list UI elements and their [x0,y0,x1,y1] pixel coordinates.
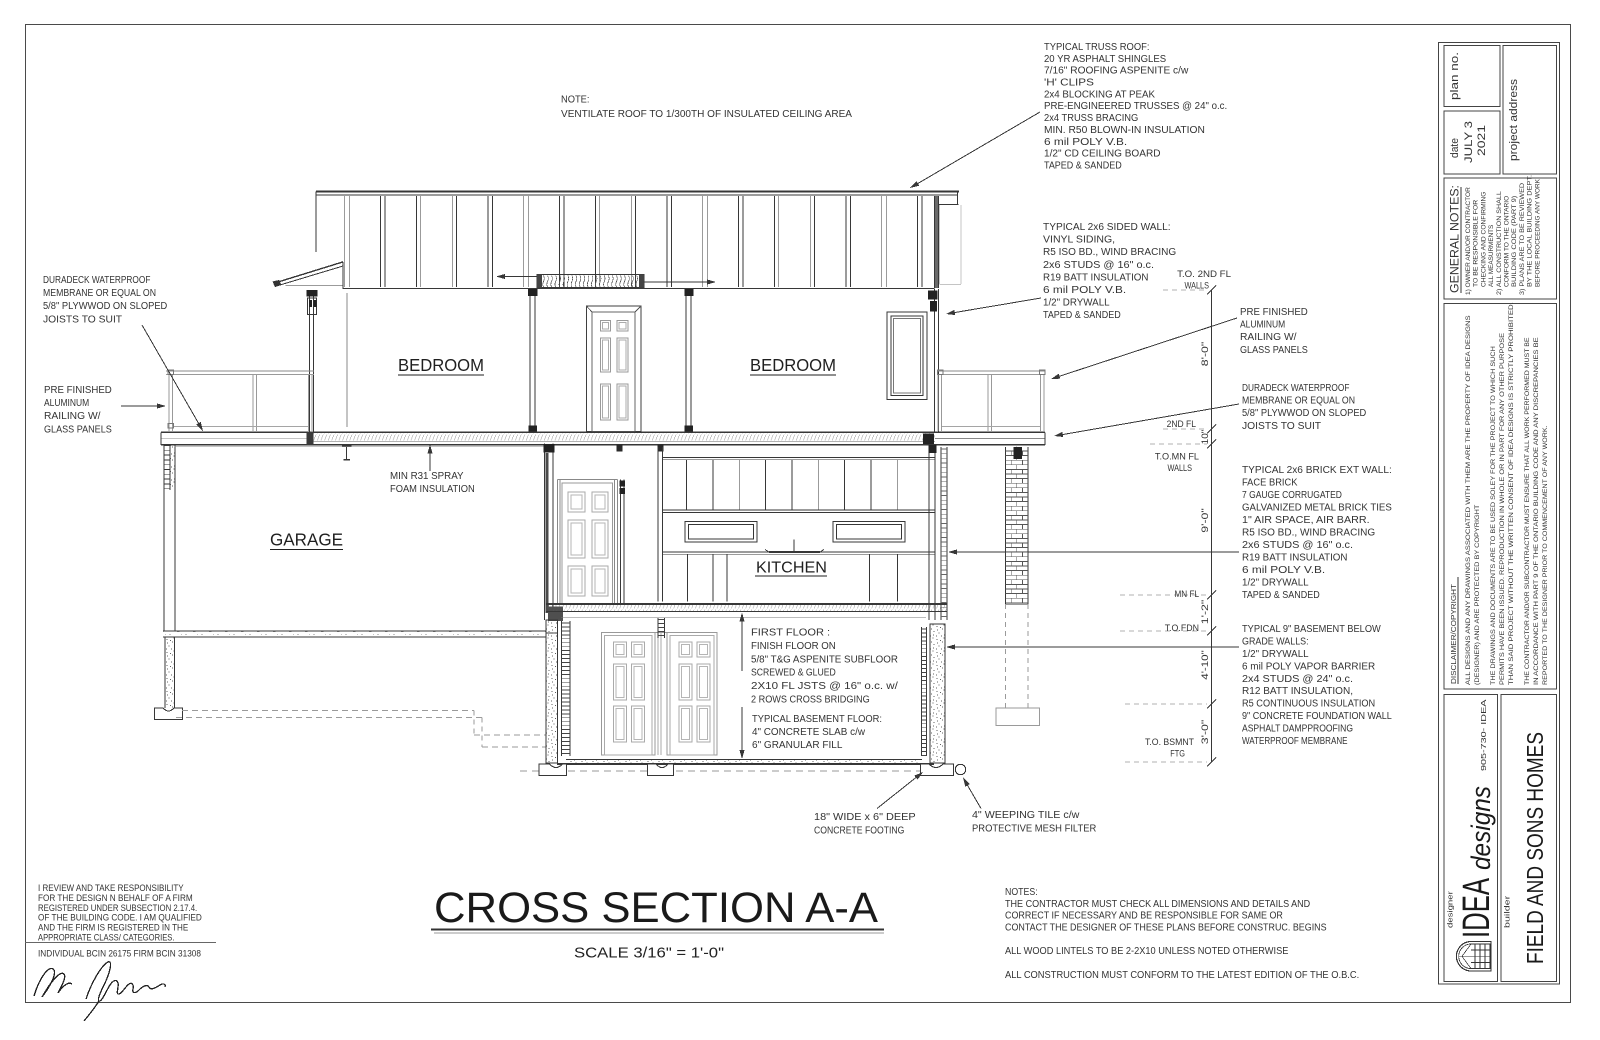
svg-text:TYPICAL 2x6 SIDED WALL:: TYPICAL 2x6 SIDED WALL: [1043,222,1171,233]
svg-text:2x6 STUDS @ 16" o.c.: 2x6 STUDS @ 16" o.c. [1242,540,1353,551]
svg-text:JOISTS TO SUIT: JOISTS TO SUIT [43,314,122,325]
svg-text:GRADE WALLS:: GRADE WALLS: [1242,637,1309,648]
svg-text:905-730- IDEA: 905-730- IDEA [1481,699,1488,771]
svg-text:ALL CONSTRUCTION MUST CONFORM: ALL CONSTRUCTION MUST CONFORM TO THE LAT… [1005,970,1359,981]
svg-text:6 mil POLY V.B.: 6 mil POLY V.B. [1242,565,1325,576]
svg-text:1/2" DRYWALL: 1/2" DRYWALL [1242,578,1309,589]
svg-text:MIN. R50 BLOWN-IN INSULATION: MIN. R50 BLOWN-IN INSULATION [1044,125,1205,136]
svg-text:JOISTS TO SUIT: JOISTS TO SUIT [1242,421,1321,432]
svg-text:R19 BATT INSULATION: R19 BATT INSULATION [1242,553,1348,564]
svg-text:GLASS PANELS: GLASS PANELS [1240,345,1308,356]
svg-text:designer: designer [1448,890,1455,928]
svg-text:NOTE:: NOTE: [561,95,590,106]
svg-text:CONTACT THE DESIGNER OF THESE: CONTACT THE DESIGNER OF THESE PLANS BEFO… [1005,923,1327,934]
svg-text:20 YR ASPHALT SHINGLES: 20 YR ASPHALT SHINGLES [1044,54,1166,65]
svg-text:5/8" PLYWWOD ON SLOPED: 5/8" PLYWWOD ON SLOPED [1242,408,1366,419]
svg-text:REPORTED TO THE DESIGNER PRIOR: REPORTED TO THE DESIGNER PRIOR TO COMMEN… [1542,425,1549,685]
svg-text:R5 CONTINUOUS INSULATION: R5 CONTINUOUS INSULATION [1242,699,1375,710]
svg-text:3'-0": 3'-0" [1200,720,1211,745]
svg-text:ASPHALT DAMPPROOFING: ASPHALT DAMPPROOFING [1242,724,1353,735]
svg-text:MIN R31 SPRAY: MIN R31 SPRAY [390,471,464,482]
svg-text:WATERPROOF MEMBRANE: WATERPROOF MEMBRANE [1242,736,1348,747]
svg-text:R19 BATT INSULATION: R19 BATT INSULATION [1043,272,1149,283]
svg-text:THE CONTRACTOR MUST CHECK ALL: THE CONTRACTOR MUST CHECK ALL DIMENSIONS… [1005,899,1310,910]
svg-text:TYPICAL 9" BASEMENT BELOW: TYPICAL 9" BASEMENT BELOW [1242,624,1381,635]
svg-text:VINYL SIDING,: VINYL SIDING, [1043,235,1115,246]
svg-text:T.O.FDN: T.O.FDN [1165,623,1199,634]
svg-text:2x4 BLOCKING AT PEAK: 2x4 BLOCKING AT PEAK [1044,89,1155,100]
svg-text:BUILDING CODE (PART 9): BUILDING CODE (PART 9) [1511,196,1518,287]
svg-text:MEMBRANE OR EQUAL ON: MEMBRANE OR EQUAL ON [43,288,156,299]
svg-text:date: date [1449,138,1461,158]
svg-text:2ND FL: 2ND FL [1167,419,1196,430]
svg-text:plan no.: plan no. [1449,52,1461,100]
svg-text:1/2" CD CEILING BOARD: 1/2" CD CEILING BOARD [1044,149,1161,160]
svg-text:6 mil POLY V.B.: 6 mil POLY V.B. [1043,285,1126,296]
svg-text:2x4 TRUSS BRACING: 2x4 TRUSS BRACING [1044,113,1139,124]
svg-text:GARAGE: GARAGE [270,530,343,550]
svg-text:DURADECK WATERPROOF: DURADECK WATERPROOF [43,275,150,286]
svg-text:2) ALL CONSTRUCTION SHALL: 2) ALL CONSTRUCTION SHALL [1496,191,1503,295]
svg-text:8'-0": 8'-0" [1200,342,1211,367]
svg-text:GLASS PANELS: GLASS PANELS [44,424,112,435]
svg-text:SCREWED & GLUED: SCREWED & GLUED [751,668,836,679]
svg-text:APPROPRIATE CLASS/ CATEGORIES.: APPROPRIATE CLASS/ CATEGORIES. [38,933,175,943]
svg-text:TYPICAL 2x6 BRICK EXT WALL:: TYPICAL 2x6 BRICK EXT WALL: [1242,465,1392,476]
svg-text:18" WIDE x 6" DEEP: 18" WIDE x 6" DEEP [814,812,916,823]
svg-text:builder: builder [1505,895,1512,928]
svg-text:2x6 STUDS @ 16" o.c.: 2x6 STUDS @ 16" o.c. [1043,260,1154,271]
svg-text:FIELD AND SONS HOMES: FIELD AND SONS HOMES [1522,732,1548,964]
svg-text:R12 BATT INSULATION,: R12 BATT INSULATION, [1242,686,1353,697]
svg-text:6" GRANULAR FILL: 6" GRANULAR FILL [752,740,843,751]
svg-text:CHECKING AND CONFIRMING: CHECKING AND CONFIRMING [1480,192,1487,288]
svg-text:ALL DESIGNS AND ANY DRAWINGS A: ALL DESIGNS AND ANY DRAWINGS ASSOCIATED … [1465,315,1472,685]
svg-text:TAPED & SANDED: TAPED & SANDED [1044,161,1122,172]
svg-text:TYPICAL BASEMENT FLOOR:: TYPICAL BASEMENT FLOOR: [752,714,882,725]
svg-text:T.O. 2ND FL: T.O. 2ND FL [1177,269,1231,280]
svg-text:2021: 2021 [1476,125,1488,156]
svg-text:2X10 FL JSTS @ 16" o.c. w/: 2X10 FL JSTS @ 16" o.c. w/ [751,681,898,692]
svg-text:NOTES:: NOTES: [1005,887,1038,898]
svg-text:DISCLAIMER/COPYRIGHT: DISCLAIMER/COPYRIGHT [1451,583,1458,684]
svg-text:VENTILATE ROOF TO 1/300TH OF I: VENTILATE ROOF TO 1/300TH OF INSULATED C… [561,109,852,120]
svg-text:ALL WOOD LINTELS TO BE 2-2X10: ALL WOOD LINTELS TO BE 2-2X10 UNLESS NOT… [1005,946,1289,957]
svg-text:CROSS SECTION A-A: CROSS SECTION A-A [434,884,878,932]
svg-text:REGISTERED UNDER SUBSECTION 2.: REGISTERED UNDER SUBSECTION 2.17.4. [38,903,197,913]
svg-text:6 mil POLY V.B.: 6 mil POLY V.B. [1044,137,1127,148]
svg-text:BEDROOM: BEDROOM [750,355,836,375]
svg-text:R5 ISO BD., WIND BRACING: R5 ISO BD., WIND BRACING [1242,528,1375,539]
svg-text:9" CONCRETE FOUNDATION WALL: 9" CONCRETE FOUNDATION WALL [1242,711,1392,722]
svg-text:GENERAL NOTES:: GENERAL NOTES: [1450,185,1462,293]
svg-text:PROTECTIVE MESH FILTER: PROTECTIVE MESH FILTER [972,823,1096,834]
svg-text:SCALE 3/16" = 1'-0": SCALE 3/16" = 1'-0" [574,945,724,962]
svg-text:4" WEEPING TILE c/w: 4" WEEPING TILE c/w [972,810,1080,821]
svg-text:2 ROWS CROSS BRIDGING: 2 ROWS CROSS BRIDGING [751,695,870,706]
svg-text:THE DRAWINGS AND DOCUMENTS ARE: THE DRAWINGS AND DOCUMENTS ARE TO BE USE… [1490,346,1497,685]
svg-text:designs: designs [1466,786,1496,870]
svg-text:PRE-ENGINEERED TRUSSES @ 24" o: PRE-ENGINEERED TRUSSES @ 24" o.c. [1044,101,1227,112]
svg-text:JULY 3: JULY 3 [1463,121,1475,163]
svg-text:GALVANIZED METAL BRICK TIES: GALVANIZED METAL BRICK TIES [1242,503,1392,514]
svg-text:FTG: FTG [1170,749,1185,760]
svg-text:INDIVIDUAL BCIN 26175 FIRM BC: INDIVIDUAL BCIN 26175 FIRM BCIN 31308 [38,949,201,959]
svg-text:4" CONCRETE SLAB c/w: 4" CONCRETE SLAB c/w [752,727,866,738]
svg-text:RAILING W/: RAILING W/ [1240,332,1297,343]
svg-text:MN FL: MN FL [1175,589,1200,600]
svg-text:1/2" DRYWALL: 1/2" DRYWALL [1043,298,1110,309]
svg-text:FIRST FLOOR :: FIRST FLOOR : [751,628,830,639]
svg-text:T.O.MN FL: T.O.MN FL [1155,452,1199,463]
svg-text:ALL MEASURMENTS: ALL MEASURMENTS [1488,224,1495,287]
svg-text:WALLS: WALLS [1168,463,1193,474]
svg-text:1" AIR SPACE, AIR BARR.: 1" AIR SPACE, AIR BARR. [1242,515,1370,526]
svg-text:I REVIEW AND TAKE RESPONSIBILI: I REVIEW AND TAKE RESPONSIBILITY [38,883,184,893]
svg-text:TYPICAL TRUSS ROOF:: TYPICAL TRUSS ROOF: [1044,42,1150,53]
svg-text:THE CONTRACTOR AND/OR SUBCONTR: THE CONTRACTOR AND/OR SUBCONTRACTOR MUST… [1524,337,1531,685]
svg-text:TO BE RESPONSIBLE FOR: TO BE RESPONSIBLE FOR [1473,200,1480,287]
svg-text:1/2" DRYWALL: 1/2" DRYWALL [1242,649,1309,660]
svg-text:KITCHEN: KITCHEN [756,560,827,577]
svg-text:9'-0": 9'-0" [1200,508,1211,533]
svg-text:5/8" T&G ASPENITE SUBFLOOR: 5/8" T&G ASPENITE SUBFLOOR [751,654,898,665]
svg-text:CONCRETE FOOTING: CONCRETE FOOTING [814,825,905,836]
svg-text:project address: project address [1508,78,1520,161]
svg-text:IDEA: IDEA [1456,878,1498,938]
svg-text:BY THE LOCAL BUILDING DEPT.: BY THE LOCAL BUILDING DEPT. [1527,175,1534,287]
svg-text:CONFORM TO THE ONTARIO: CONFORM TO THE ONTARIO [1504,196,1511,287]
svg-text:1) OWNER AND/OR CONTRACTOR: 1) OWNER AND/OR CONTRACTOR [1465,187,1472,295]
svg-text:TAPED & SANDED: TAPED & SANDED [1242,590,1320,601]
svg-text:PRE FINISHED: PRE FINISHED [44,385,112,396]
svg-text:R5 ISO BD., WIND BRACING: R5 ISO BD., WIND BRACING [1043,247,1176,258]
svg-text:THAN SAID PROJECT WITHOUT THE: THAN SAID PROJECT WITHOUT THE WRITTEN CO… [1508,302,1515,685]
svg-text:CORRECT IF NECESSARY AND BE RE: CORRECT IF NECESSARY AND BE RESPONSIBLE … [1005,911,1283,922]
svg-text:IN ACCORDANCE WITH PART 9 OF T: IN ACCORDANCE WITH PART 9 OF THE ONTARIO… [1533,337,1540,685]
svg-text:2x4 STUDS @ 24" o.c.: 2x4 STUDS @ 24" o.c. [1242,674,1353,685]
svg-text:5/8" PLYWWOD ON SLOPED: 5/8" PLYWWOD ON SLOPED [43,301,167,312]
svg-text:T.O. BSMNT: T.O. BSMNT [1145,737,1194,748]
svg-text:PERMITS HAVE BEEN ISSUED. REPR: PERMITS HAVE BEEN ISSUED. REPRODUCTION I… [1499,332,1506,685]
svg-text:FOR THE DESIGN N BEHALF OF A: FOR THE DESIGN N BEHALF OF A FIRM [38,893,193,903]
svg-text:ALUMINUM: ALUMINUM [44,398,89,409]
svg-text:FINISH FLOOR ON: FINISH FLOOR ON [751,641,836,652]
svg-text:ALUMINUM: ALUMINUM [1240,320,1285,331]
svg-text:FACE BRICK: FACE BRICK [1242,478,1298,489]
svg-text:1'-2": 1'-2" [1200,600,1211,625]
svg-text:OF THE BUILDING CODE. I AM QUA: OF THE BUILDING CODE. I AM QUALIFIED [38,913,202,923]
svg-text:RAILING W/: RAILING W/ [44,411,101,422]
svg-text:AND THE FIRM IS REGISTERED IN: AND THE FIRM IS REGISTERED IN THE [38,923,188,933]
svg-text:PRE FINISHED: PRE FINISHED [1240,307,1308,318]
svg-text:'H' CLIPS: 'H' CLIPS [1044,78,1094,89]
svg-text:3) PLANS ARE TO BE REVIEWED: 3) PLANS ARE TO BE REVIEWED [1519,183,1526,295]
svg-text:10": 10" [1200,430,1211,445]
svg-text:BEDROOM: BEDROOM [398,355,484,375]
svg-text:WALLS: WALLS [1185,281,1210,292]
svg-text:MEMBRANE OR EQUAL ON: MEMBRANE OR EQUAL ON [1242,396,1355,407]
svg-text:FOAM INSULATION: FOAM INSULATION [390,484,475,495]
svg-text:7/16" ROOFING ASPENITE c/w: 7/16" ROOFING ASPENITE c/w [1044,66,1189,77]
svg-text:4'-10": 4'-10" [1200,650,1211,679]
svg-text:6 mil POLY VAPOR BARRIER: 6 mil POLY VAPOR BARRIER [1242,661,1375,672]
svg-text:(DESIGNER) AND ARE PROTECTED B: (DESIGNER) AND ARE PROTECTED BY COPYRIGH… [1474,505,1481,685]
svg-text:BEFORE PROCEEDING ANY WORK: BEFORE PROCEEDING ANY WORK [1534,179,1541,287]
svg-text:DURADECK WATERPROOF: DURADECK WATERPROOF [1242,383,1349,394]
svg-text:TAPED & SANDED: TAPED & SANDED [1043,310,1121,321]
svg-text:7 GAUGE CORRUGATED: 7 GAUGE CORRUGATED [1242,490,1342,501]
